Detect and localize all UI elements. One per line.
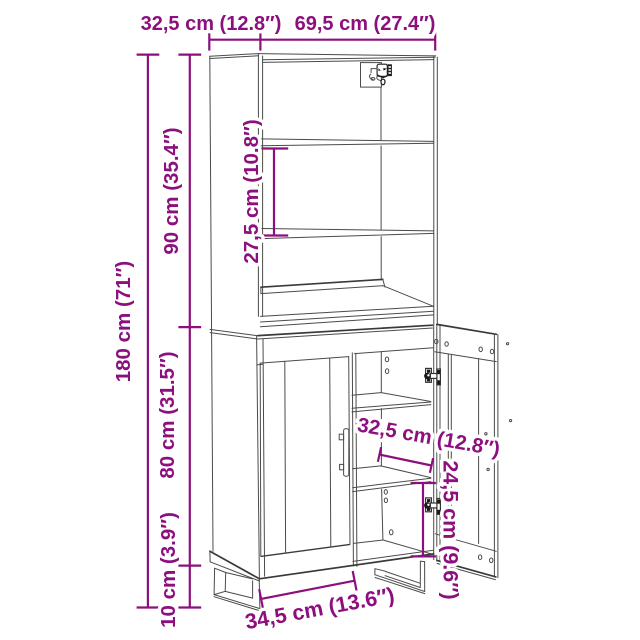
svg-text:27,5 cm (10.8″): 27,5 cm (10.8″) — [240, 119, 263, 263]
svg-text:24,5 cm (9.6″): 24,5 cm (9.6″) — [439, 460, 463, 599]
svg-text:32,5 cm (12.8″): 32,5 cm (12.8″) — [141, 13, 282, 35]
svg-text:69,5 cm (27.4″): 69,5 cm (27.4″) — [295, 13, 436, 35]
svg-text:10 cm (3.9″): 10 cm (3.9″) — [157, 512, 180, 628]
svg-text:90 cm (35.4″): 90 cm (35.4″) — [160, 127, 183, 254]
svg-text:180 cm (71″): 180 cm (71″) — [112, 261, 135, 383]
svg-text:80 cm (31.5″): 80 cm (31.5″) — [156, 351, 179, 478]
